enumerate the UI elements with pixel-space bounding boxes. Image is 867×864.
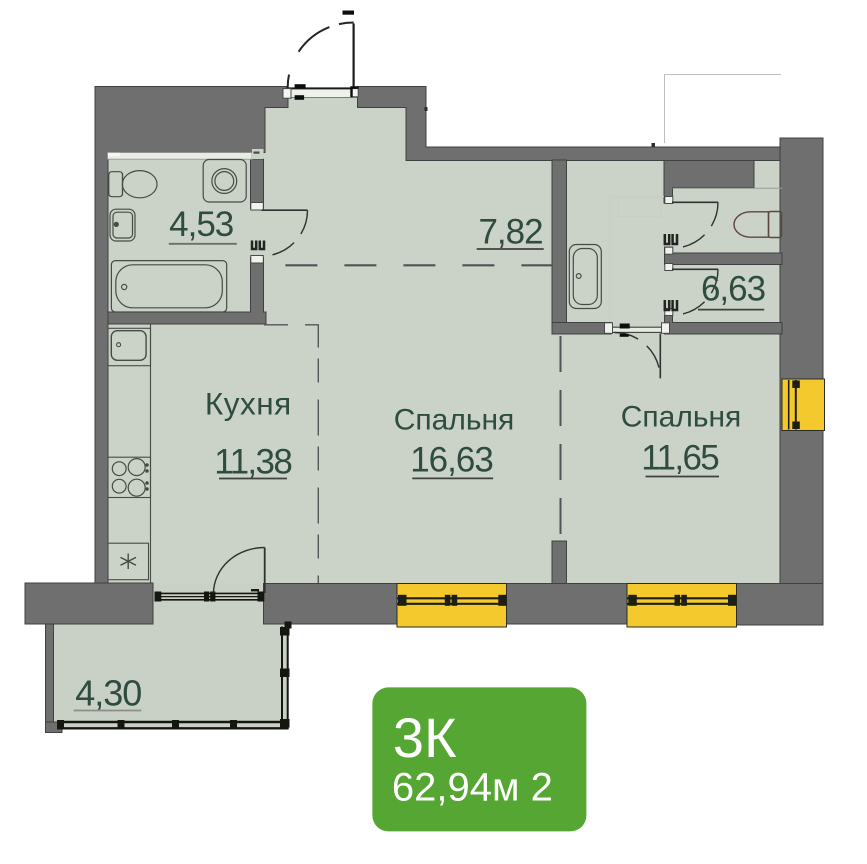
- svg-text:3К: 3К: [393, 706, 457, 769]
- svg-text:4,30: 4,30: [75, 673, 141, 714]
- svg-text:Спальня: Спальня: [394, 404, 515, 437]
- svg-text:7,82: 7,82: [478, 213, 542, 252]
- svg-text:11,65: 11,65: [641, 439, 718, 478]
- svg-text:11,38: 11,38: [214, 443, 291, 482]
- svg-text:6,63: 6,63: [701, 270, 765, 309]
- svg-text:Спальня: Спальня: [621, 401, 742, 434]
- svg-text:Кухня: Кухня: [205, 386, 292, 422]
- svg-text:4,53: 4,53: [169, 205, 233, 244]
- svg-text:62,94м 2: 62,94м 2: [392, 766, 553, 810]
- svg-text:16,63: 16,63: [410, 441, 493, 480]
